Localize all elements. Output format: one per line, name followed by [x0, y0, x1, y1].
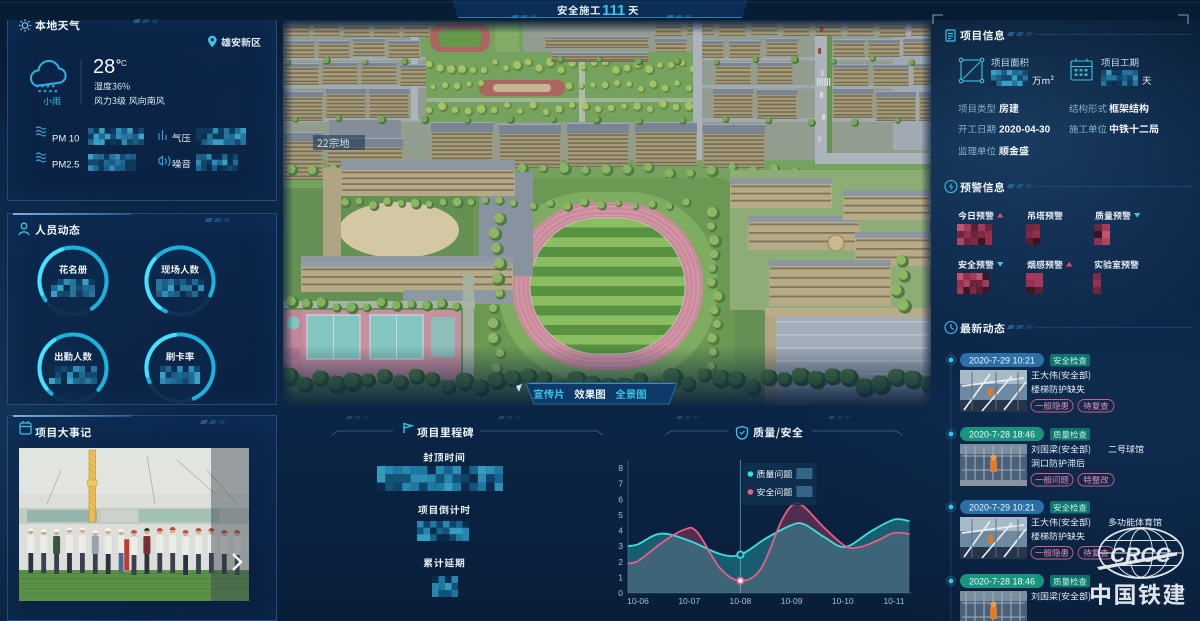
svg-text:111: 111 — [602, 2, 625, 19]
svg-text:10-11: 10-11 — [883, 596, 904, 606]
svg-text:10-09: 10-09 — [781, 596, 803, 606]
svg-text:PM 10: PM 10 — [52, 134, 79, 145]
svg-text:2020-7-29 10:21: 2020-7-29 10:21 — [969, 503, 1035, 513]
svg-text:10-08: 10-08 — [730, 596, 752, 606]
svg-text:2020-7-28 18:46: 2020-7-28 18:46 — [969, 577, 1035, 587]
svg-text:2020-04-30: 2020-04-30 — [999, 125, 1051, 136]
svg-text:8: 8 — [618, 463, 623, 473]
svg-text:0: 0 — [618, 588, 623, 598]
svg-text:C: C — [121, 59, 127, 68]
svg-text:28: 28 — [93, 56, 115, 78]
svg-text:10-10: 10-10 — [832, 596, 854, 606]
svg-text:6: 6 — [618, 494, 623, 504]
svg-text:1: 1 — [618, 572, 623, 582]
svg-text:10-07: 10-07 — [678, 596, 700, 606]
svg-text:4: 4 — [618, 526, 623, 536]
svg-text:CRCC: CRCC — [1110, 544, 1171, 567]
svg-text:2020-7-28 18:46: 2020-7-28 18:46 — [969, 430, 1035, 440]
svg-text:2020-7-29 10:21: 2020-7-29 10:21 — [969, 356, 1035, 366]
svg-text:5: 5 — [618, 510, 623, 520]
svg-text:10-06: 10-06 — [627, 596, 649, 606]
svg-text:7: 7 — [618, 479, 623, 489]
svg-text:2: 2 — [618, 557, 623, 567]
svg-text:PM2.5: PM2.5 — [52, 160, 79, 171]
svg-text:3: 3 — [618, 541, 623, 551]
